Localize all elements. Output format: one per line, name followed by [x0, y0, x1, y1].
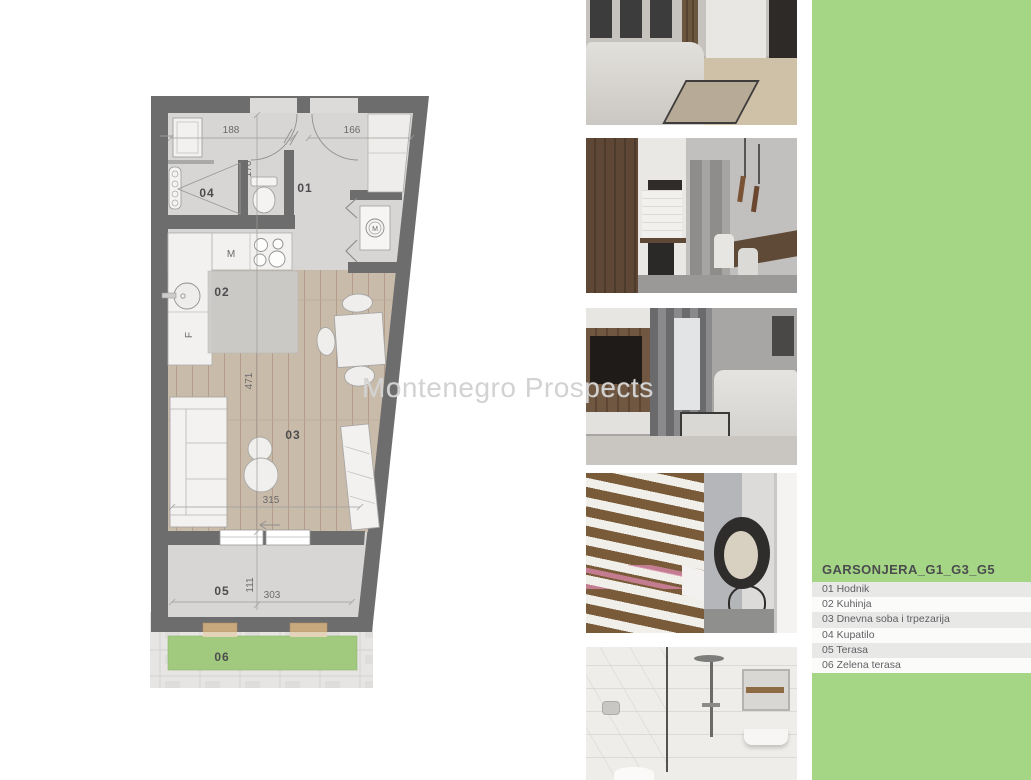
photo-kitchen-dining — [586, 138, 797, 293]
photo-hood — [648, 180, 682, 190]
photo-window-frame — [774, 473, 797, 633]
photo-floor — [704, 609, 774, 633]
photo-wood-wardrobe — [586, 138, 638, 293]
photo-floor — [586, 436, 797, 465]
legend-item-kupatilo: 04 Kupatilo — [812, 628, 1031, 643]
photo-pendant-lights — [744, 138, 746, 178]
sink — [174, 283, 200, 309]
svg-text:166: 166 — [344, 125, 361, 136]
svg-text:01: 01 — [297, 181, 312, 195]
photo-wood-slats — [586, 473, 704, 633]
svg-text:M: M — [227, 249, 235, 260]
svg-text:03: 03 — [285, 428, 300, 442]
legend-title: GARSONJERA_G1_G3_G5 — [812, 558, 1031, 582]
svg-text:02: 02 — [214, 285, 229, 299]
photo-shower-pipe — [710, 659, 713, 737]
legend-item-hodnik: 01 Hodnik — [812, 582, 1031, 597]
photo-chairs — [714, 234, 734, 268]
watermark-text: Montenegro Prospects — [362, 372, 682, 404]
photo-sink — [744, 729, 788, 745]
faucet — [162, 293, 176, 298]
photo-shower-mixer — [702, 703, 720, 707]
photo-living-room-sofa — [586, 0, 797, 125]
toilet-bowl — [253, 187, 275, 213]
legend-item-dnevna-soba: 03 Dnevna soba i trpezarija — [812, 612, 1031, 627]
svg-text:471: 471 — [244, 372, 255, 389]
svg-text:05: 05 — [214, 584, 229, 598]
photo-niche-shelf — [746, 687, 784, 693]
photo-tile-diag — [586, 647, 666, 780]
photo-glass-panel — [666, 647, 668, 772]
svg-text:F: F — [184, 332, 195, 338]
svg-text:04: 04 — [199, 186, 214, 200]
legend-item-kuhinja: 02 Kuhinja — [812, 597, 1031, 612]
svg-text:M: M — [372, 226, 378, 233]
photo-bathroom — [586, 647, 797, 780]
legend-item-zelena-terasa: 06 Zelena terasa — [812, 658, 1031, 673]
photo-balcony — [586, 473, 797, 633]
photo-chair-cushion — [724, 531, 758, 579]
photo-art-frames — [590, 0, 674, 38]
svg-text:06: 06 — [214, 650, 229, 664]
sofa — [170, 397, 227, 527]
svg-text:315: 315 — [263, 495, 280, 506]
svg-text:176: 176 — [243, 160, 254, 177]
legend-item-terasa: 05 Terasa — [812, 643, 1031, 658]
kitchen-zone — [208, 271, 298, 353]
photo-kitchen-cabinets — [706, 0, 766, 61]
photo-floor — [638, 275, 797, 293]
photo-oven — [648, 243, 674, 275]
svg-text:303: 303 — [264, 590, 281, 601]
toilet-tank — [251, 177, 277, 186]
legend: GARSONJERA_G1_G3_G5 01 Hodnik 02 Kuhinja… — [812, 558, 1031, 673]
photo-upper-cabinet — [586, 308, 650, 328]
photo-flush-plate — [602, 701, 620, 715]
green-side-panel: GARSONJERA_G1_G3_G5 01 Hodnik 02 Kuhinja… — [812, 0, 1031, 780]
photo-art-frame — [772, 316, 794, 356]
photo-shower-head — [694, 655, 724, 662]
hall-wardrobe — [368, 114, 411, 192]
photo-backsplash — [642, 190, 682, 238]
photo-toilet — [614, 767, 654, 780]
svg-text:188: 188 — [223, 125, 240, 136]
svg-text:111: 111 — [245, 577, 256, 593]
green-terrace — [168, 636, 357, 670]
